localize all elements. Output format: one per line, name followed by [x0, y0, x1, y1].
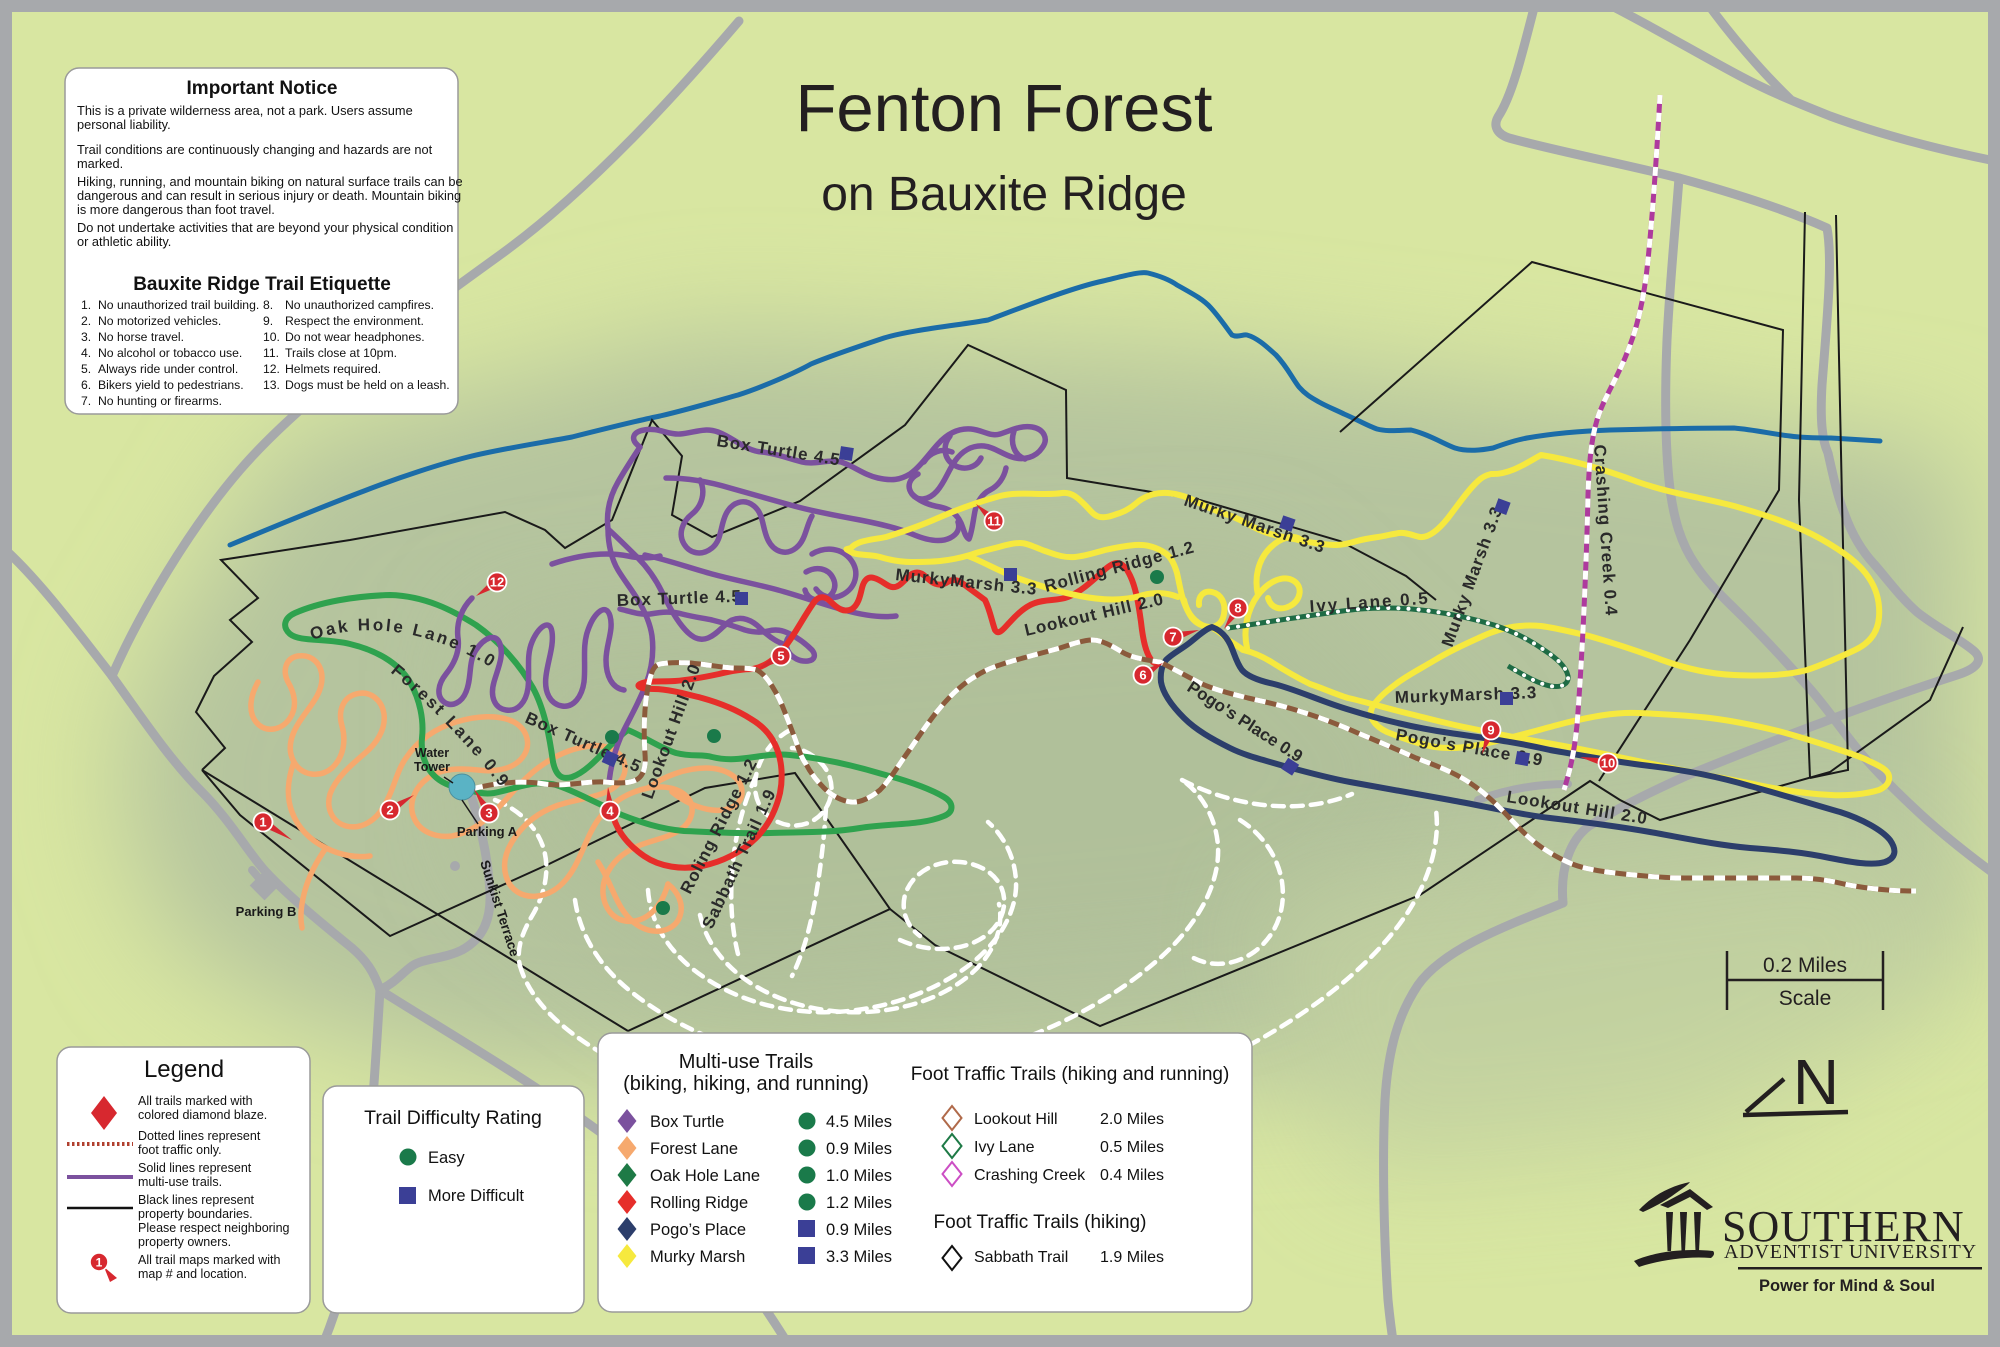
svg-text:on Bauxite Ridge: on Bauxite Ridge: [821, 168, 1187, 221]
svg-text:6.: 6.: [81, 378, 91, 392]
svg-text:Foot Traffic Trails (hiking a: Foot Traffic Trails (hiking and running): [911, 1064, 1230, 1085]
svg-text:Ivy Lane: Ivy Lane: [974, 1139, 1035, 1156]
svg-text:11: 11: [987, 514, 1001, 529]
svg-text:Parking B: Parking B: [236, 904, 297, 919]
svg-text:No horse travel.: No horse travel.: [98, 330, 184, 344]
svg-text:Important Notice: Important Notice: [187, 78, 338, 99]
svg-text:ADVENTIST UNIVERSITY: ADVENTIST UNIVERSITY: [1724, 1241, 1977, 1263]
svg-text:Rolling Ridge: Rolling Ridge: [650, 1194, 748, 1212]
svg-text:1: 1: [96, 1256, 103, 1270]
svg-text:No hunting or firearms.: No hunting or firearms.: [98, 394, 222, 408]
svg-text:Box Turtle: Box Turtle: [650, 1113, 724, 1131]
svg-text:This is a private wilderness a: This is a private wilderness area, not a…: [77, 103, 413, 118]
svg-text:N: N: [1793, 1046, 1839, 1118]
svg-text:dangerous and can result in se: dangerous and can result in serious inju…: [77, 188, 461, 203]
svg-text:2.: 2.: [81, 314, 91, 328]
svg-text:2.0 Miles: 2.0 Miles: [1100, 1111, 1164, 1128]
svg-text:1.2 Miles: 1.2 Miles: [826, 1194, 892, 1212]
svg-text:Easy: Easy: [428, 1149, 465, 1167]
svg-text:Forest Lane: Forest Lane: [650, 1140, 738, 1158]
svg-text:4: 4: [606, 804, 614, 819]
svg-text:Power for Mind & Soul: Power for Mind & Soul: [1759, 1277, 1935, 1295]
svg-text:Water: Water: [415, 746, 449, 760]
svg-text:Pogo’s Place: Pogo’s Place: [650, 1221, 746, 1239]
svg-text:Foot Traffic Trails (hiking): Foot Traffic Trails (hiking): [934, 1212, 1147, 1233]
svg-text:1.0 Miles: 1.0 Miles: [826, 1167, 892, 1185]
svg-text:or athletic ability.: or athletic ability.: [77, 234, 171, 249]
svg-text:8.: 8.: [263, 298, 273, 312]
svg-text:Lookout Hill: Lookout Hill: [974, 1111, 1058, 1128]
svg-text:12: 12: [490, 575, 504, 590]
svg-text:0.5 Miles: 0.5 Miles: [1100, 1139, 1164, 1156]
svg-text:Hiking, running, and mountain: Hiking, running, and mountain biking on …: [77, 174, 463, 189]
svg-text:0.9 Miles: 0.9 Miles: [826, 1221, 892, 1239]
svg-text:Tower: Tower: [414, 760, 450, 774]
svg-text:0.9 Miles: 0.9 Miles: [826, 1140, 892, 1158]
svg-text:No unauthorized campfires.: No unauthorized campfires.: [285, 298, 434, 312]
svg-text:No unauthorized trail building: No unauthorized trail building.: [98, 298, 259, 312]
svg-text:0.4 Miles: 0.4 Miles: [1100, 1167, 1164, 1184]
svg-text:Solid lines represent: Solid lines represent: [138, 1161, 252, 1175]
svg-text:12.: 12.: [263, 362, 280, 376]
svg-text:1.: 1.: [81, 298, 91, 312]
svg-text:Parking A: Parking A: [457, 824, 518, 839]
svg-text:Sabbath Trail: Sabbath Trail: [974, 1249, 1068, 1266]
svg-text:2: 2: [386, 803, 393, 818]
svg-text:0.2 Miles: 0.2 Miles: [1763, 954, 1847, 977]
svg-text:1.9 Miles: 1.9 Miles: [1100, 1249, 1164, 1266]
svg-text:10.: 10.: [263, 330, 280, 344]
svg-text:No alcohol or tobacco use.: No alcohol or tobacco use.: [98, 346, 242, 360]
svg-text:Trail conditions are continuou: Trail conditions are continuously changi…: [77, 142, 433, 157]
svg-text:Always ride under control.: Always ride under control.: [98, 362, 238, 376]
svg-text:Trail Difficulty Rating: Trail Difficulty Rating: [364, 1107, 542, 1129]
svg-text:personal liability.: personal liability.: [77, 117, 171, 132]
svg-text:Dotted lines represent: Dotted lines represent: [138, 1129, 261, 1143]
svg-text:is more dangerous than foot tr: is more dangerous than foot travel.: [77, 202, 275, 217]
svg-text:(biking, hiking, and running): (biking, hiking, and running): [623, 1073, 869, 1095]
svg-text:More Difficult: More Difficult: [428, 1187, 524, 1205]
svg-text:Black lines represent: Black lines represent: [138, 1193, 255, 1207]
svg-text:Bauxite Ridge Trail Etiquette: Bauxite Ridge Trail Etiquette: [133, 274, 391, 295]
svg-text:Bikers yield to pedestrians.: Bikers yield to pedestrians.: [98, 378, 244, 392]
svg-text:Scale: Scale: [1779, 987, 1832, 1010]
svg-text:13.: 13.: [263, 378, 280, 392]
svg-text:8: 8: [1234, 601, 1241, 616]
svg-text:Murky Marsh: Murky Marsh: [650, 1248, 745, 1266]
svg-text:7: 7: [1169, 630, 1176, 645]
svg-text:9.: 9.: [263, 314, 273, 328]
svg-text:11.: 11.: [263, 346, 279, 360]
svg-text:Do not wear headphones.: Do not wear headphones.: [285, 330, 425, 344]
svg-text:multi-use trails.: multi-use trails.: [138, 1175, 222, 1189]
svg-text:marked.: marked.: [77, 156, 123, 171]
svg-text:3.3 Miles: 3.3 Miles: [826, 1248, 892, 1266]
svg-text:colored diamond blaze.: colored diamond blaze.: [138, 1108, 267, 1122]
svg-text:Helmets required.: Helmets required.: [285, 362, 381, 376]
svg-text:3.: 3.: [81, 330, 91, 344]
svg-text:Crashing Creek: Crashing Creek: [974, 1167, 1086, 1184]
svg-text:Do not undertake activities th: Do not undertake activities that are bey…: [77, 220, 453, 235]
svg-text:Oak Hole Lane: Oak Hole Lane: [650, 1167, 760, 1185]
svg-text:foot traffic only.: foot traffic only.: [138, 1143, 222, 1157]
svg-text:Legend: Legend: [144, 1056, 224, 1083]
svg-text:4.5 Miles: 4.5 Miles: [826, 1113, 892, 1131]
svg-text:7.: 7.: [81, 394, 91, 408]
svg-text:9: 9: [1487, 723, 1494, 738]
svg-text:5.: 5.: [81, 362, 91, 376]
svg-text:Fenton Forest: Fenton Forest: [795, 71, 1212, 146]
svg-text:property owners.: property owners.: [138, 1235, 231, 1249]
svg-text:5: 5: [777, 649, 784, 664]
svg-text:Dogs must be held on a leash.: Dogs must be held on a leash.: [285, 378, 450, 392]
svg-text:4.: 4.: [81, 346, 91, 360]
svg-text:Respect the environment.: Respect the environment.: [285, 314, 424, 328]
svg-text:Multi-use Trails: Multi-use Trails: [679, 1051, 813, 1073]
svg-text:property boundaries.: property boundaries.: [138, 1207, 253, 1221]
svg-text:All trail maps marked with: All trail maps marked with: [138, 1253, 280, 1267]
svg-text:All trails marked with: All trails marked with: [138, 1094, 253, 1108]
svg-text:10: 10: [1601, 756, 1615, 771]
svg-text:1: 1: [259, 815, 266, 830]
svg-text:No motorized vehicles.: No motorized vehicles.: [98, 314, 221, 328]
svg-text:Please respect neighboring: Please respect neighboring: [138, 1221, 290, 1235]
svg-text:3: 3: [485, 806, 492, 821]
svg-text:map # and location.: map # and location.: [138, 1267, 247, 1281]
svg-text:6: 6: [1139, 668, 1146, 683]
svg-text:Trails close at 10pm.: Trails close at 10pm.: [285, 346, 397, 360]
